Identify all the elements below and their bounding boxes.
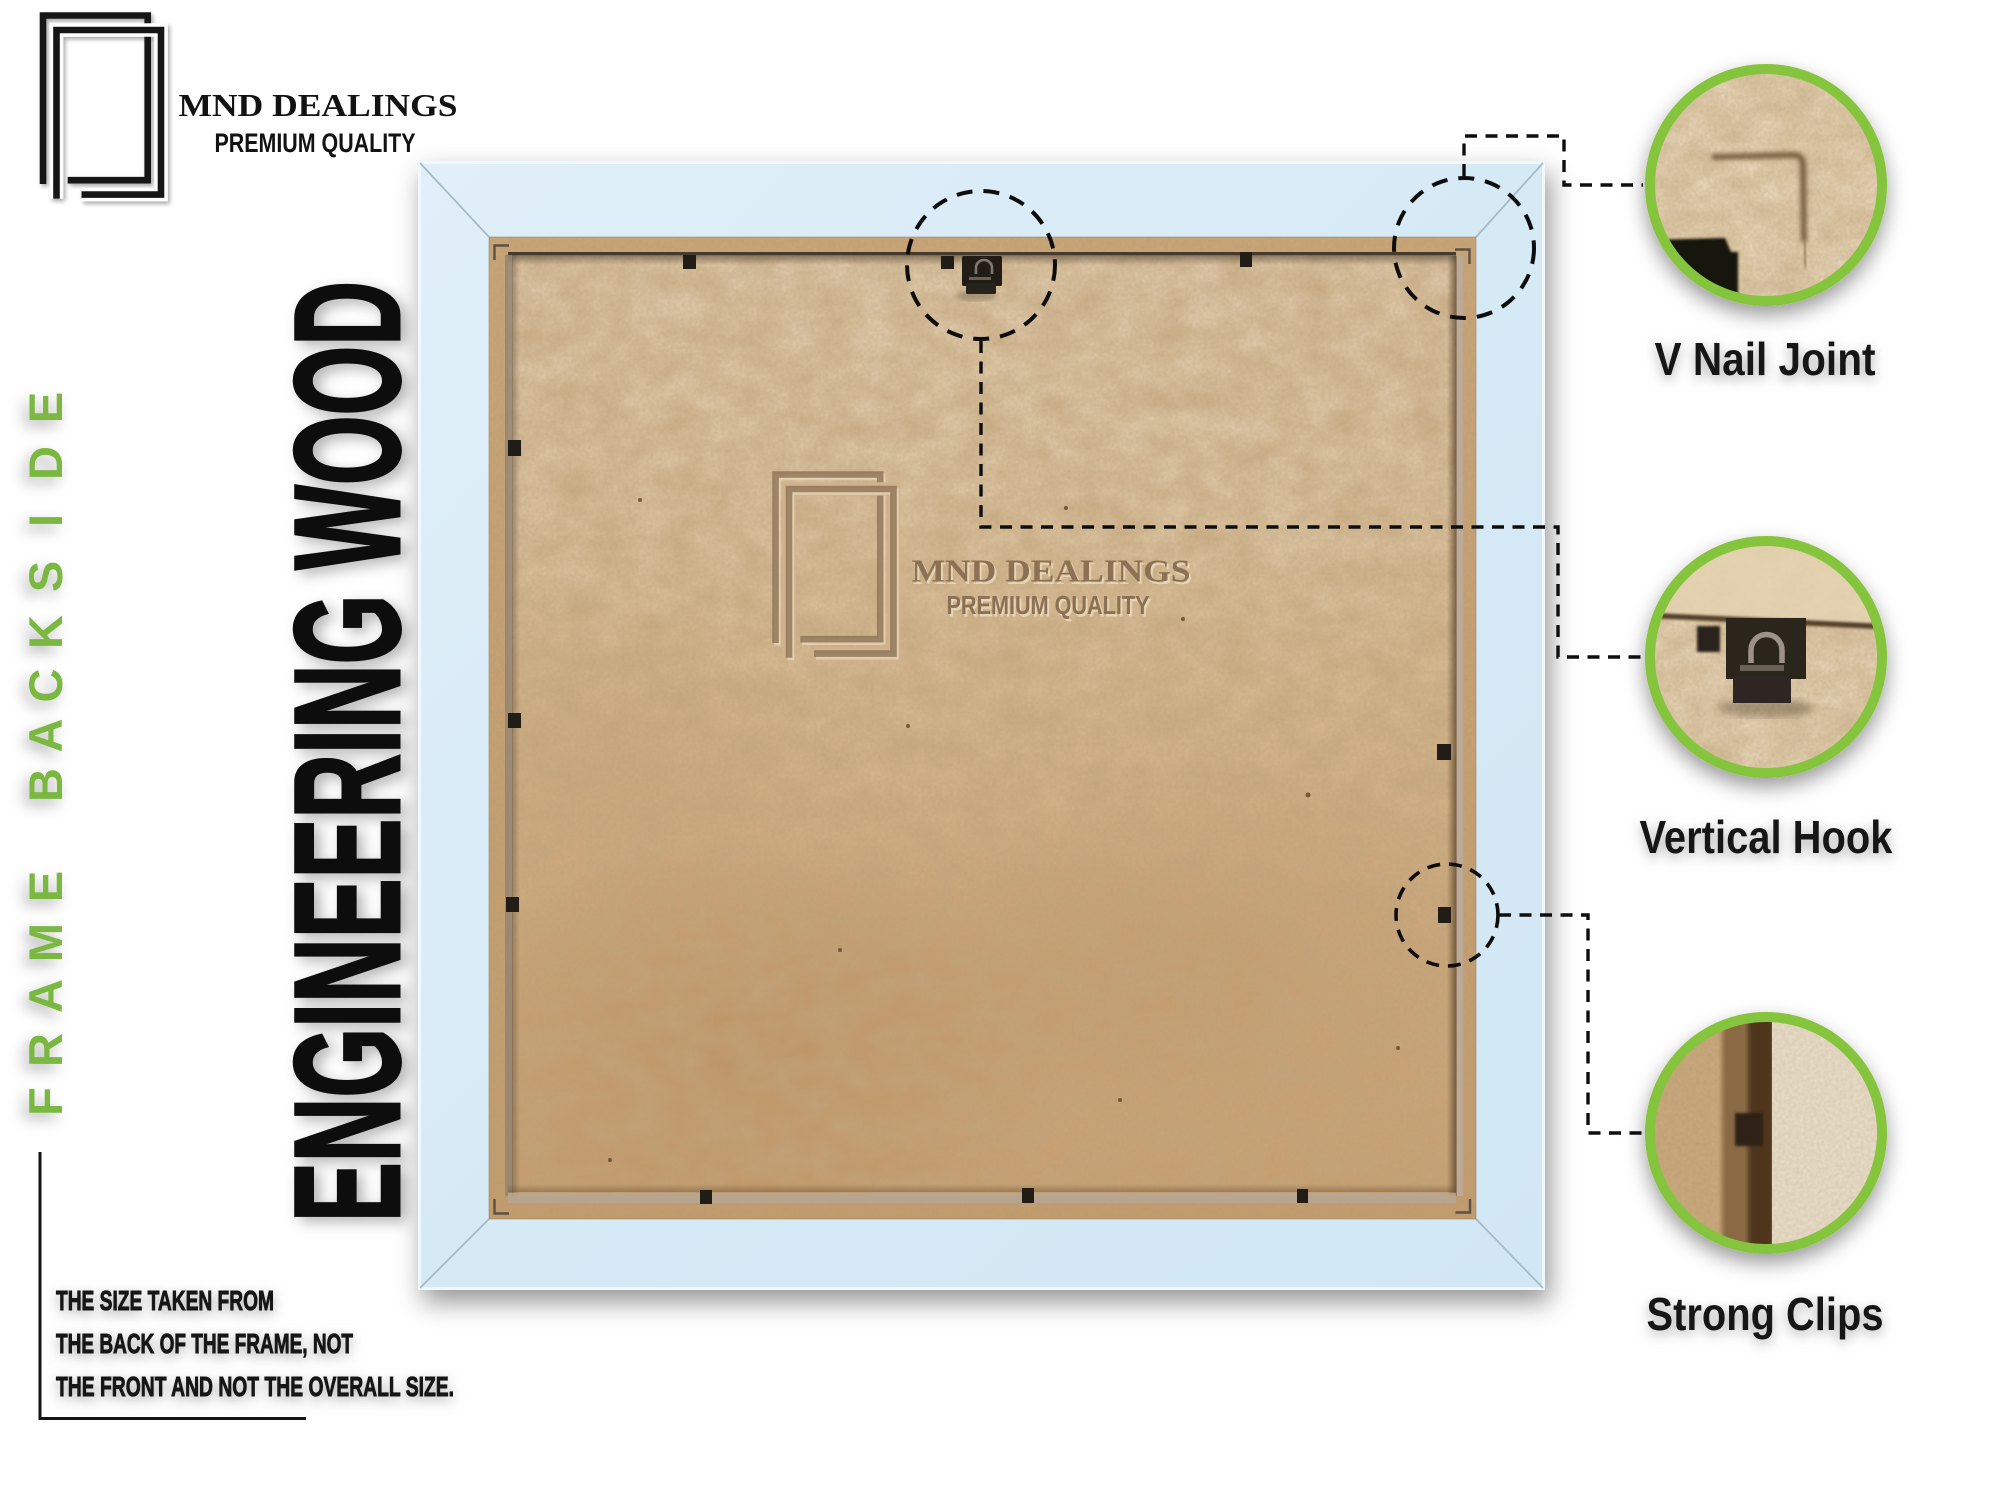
svg-text:E: E [19,871,72,902]
svg-text:PREMIUM QUALITY: PREMIUM QUALITY [947,590,1150,620]
svg-text:Strong Clips: Strong Clips [1647,1288,1884,1340]
svg-text:C: C [19,669,72,703]
svg-text:Vertical Hook: Vertical Hook [1640,811,1893,863]
svg-text:E: E [19,392,72,423]
svg-text:THE FRONT AND NOT THE OVERALL: THE FRONT AND NOT THE OVERALL SIZE. [56,1371,454,1402]
svg-text:B: B [19,768,72,802]
svg-text:THE SIZE TAKEN FROM: THE SIZE TAKEN FROM [56,1285,274,1316]
svg-text:PREMIUM QUALITY: PREMIUM QUALITY [215,128,416,158]
svg-text:R: R [19,1033,72,1067]
svg-text:THE BACK OF THE FRAME, NOT: THE BACK OF THE FRAME, NOT [56,1328,353,1359]
svg-text:A: A [19,979,72,1013]
svg-text:S: S [19,561,72,592]
svg-text:V Nail Joint: V Nail Joint [1655,333,1876,385]
svg-text:D: D [19,446,72,480]
svg-text:I: I [19,514,72,527]
svg-text:A: A [19,719,72,753]
svg-text:MND DEALINGS: MND DEALINGS [179,87,458,123]
svg-text:F: F [19,1087,72,1116]
svg-text:ENGINEERING WOOD: ENGINEERING WOOD [263,281,431,1222]
svg-text:K: K [19,615,72,649]
svg-text:MND DEALINGS: MND DEALINGS [912,553,1191,589]
svg-text:M: M [19,923,72,962]
